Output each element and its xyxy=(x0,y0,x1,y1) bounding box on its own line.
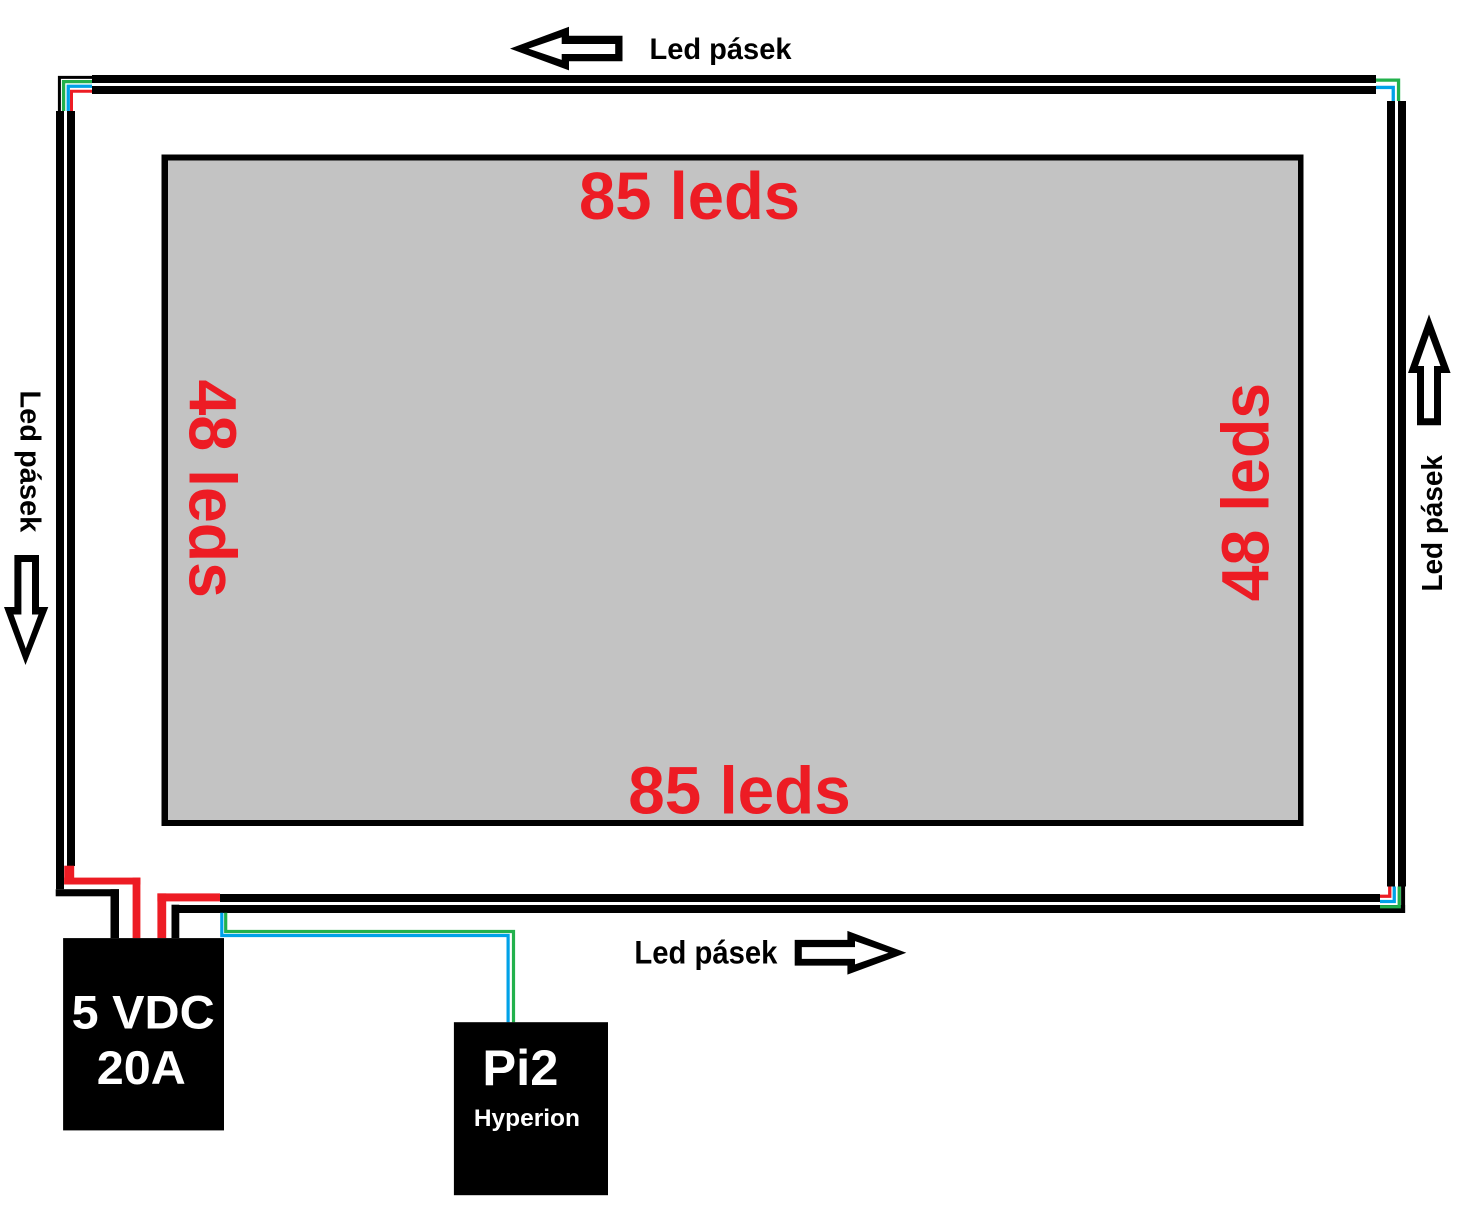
svg-text:Led pásek: Led pásek xyxy=(634,934,777,970)
svg-text:48 leds: 48 leds xyxy=(174,380,249,599)
svg-text:20A: 20A xyxy=(97,1041,186,1094)
svg-text:Hyperion: Hyperion xyxy=(474,1105,580,1132)
svg-text:Pi2: Pi2 xyxy=(482,1040,558,1096)
svg-text:Led pásek: Led pásek xyxy=(650,33,792,66)
svg-text:5 VDC: 5 VDC xyxy=(72,986,215,1039)
svg-text:85 leds: 85 leds xyxy=(628,753,851,828)
svg-text:48 leds: 48 leds xyxy=(1209,383,1284,601)
svg-text:Led pásek: Led pásek xyxy=(14,390,46,533)
svg-text:Led pásek: Led pásek xyxy=(1417,454,1449,591)
svg-text:85 leds: 85 leds xyxy=(579,159,800,234)
